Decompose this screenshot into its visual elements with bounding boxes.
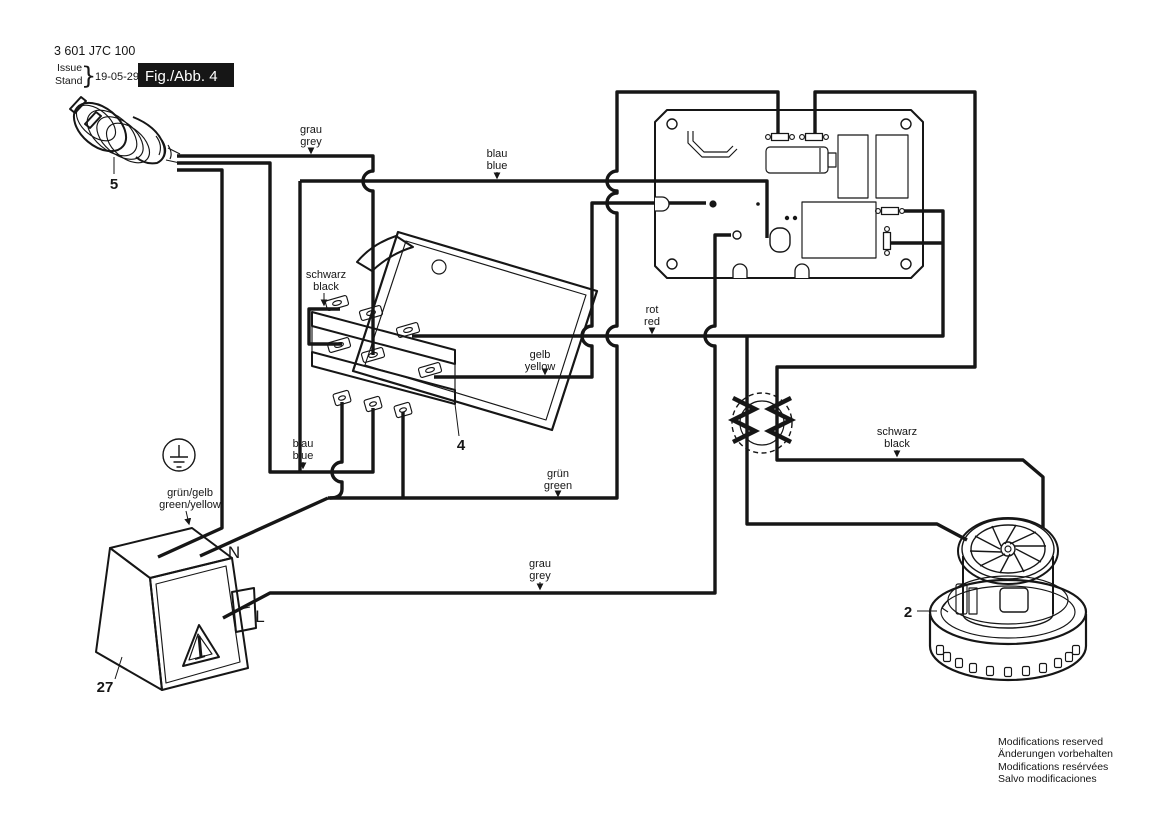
suppressor-winding-left: [733, 398, 755, 442]
wire-black: [777, 92, 1043, 528]
switch-screw-hole: [432, 260, 446, 274]
pcb-notch-left: [655, 197, 669, 211]
wire-label-gruen-gelb: grün/gelb green/yellow: [159, 487, 221, 524]
footer-line: Modifications reserved: [998, 736, 1103, 748]
footer-line: Salvo modificaciones: [998, 773, 1097, 785]
ground-symbol: [163, 439, 195, 471]
svg-text:red: red: [644, 316, 660, 328]
wire-label-gruen: grün green: [544, 468, 572, 496]
wire-label-grau-bottom: grau grey: [529, 558, 551, 589]
pcb-mount-hole: [901, 259, 911, 269]
svg-text:grey: grey: [529, 570, 551, 582]
figure-label: Fig./Abb. 4: [145, 68, 218, 85]
svg-text:grau: grau: [529, 558, 551, 570]
pcb-solder-dot: [709, 200, 716, 207]
rocker-switch: [312, 232, 597, 436]
pcb-mount-hole: [901, 119, 911, 129]
pcb-notch: [733, 264, 747, 278]
svg-text:black: black: [313, 281, 339, 293]
svg-text:black: black: [884, 438, 910, 450]
issue-label: Issue: [57, 62, 82, 74]
pcb-trace: [693, 131, 733, 152]
stand-label: Stand: [55, 75, 83, 87]
switch-leader: [455, 404, 459, 436]
svg-text:schwarz: schwarz: [877, 426, 917, 438]
svg-text:green/yellow: green/yellow: [159, 499, 221, 511]
socket-warning-glyph: [199, 636, 201, 657]
wire-label-gelb: gelb yellow: [525, 349, 556, 374]
footer-note: Modifications reserved Änderungen vorbeh…: [998, 736, 1113, 785]
switch-rocker: [357, 236, 413, 271]
wire-label-blau-top: blau blue: [487, 148, 508, 178]
socket-left-face: [96, 548, 162, 690]
pcb-component-block: [876, 135, 908, 198]
callout-socket: 27: [97, 679, 114, 696]
svg-text:blau: blau: [293, 438, 314, 450]
wire-label-schwarz-switch: schwarz black: [306, 269, 346, 305]
wire-label-grau-top: grau grey: [300, 124, 322, 153]
pcb: [655, 110, 923, 278]
switch-terminal-rail-upper: [312, 312, 455, 364]
title-block: 3 601 J7C 100 Issue Stand } 19-05-29 Fig…: [54, 44, 234, 90]
neutral-label: N: [228, 543, 240, 562]
svg-text:blau: blau: [487, 148, 508, 160]
plug-boot-rib: [168, 145, 171, 159]
svg-text:rot: rot: [646, 304, 659, 316]
earth-icon: [170, 445, 188, 467]
svg-text:grün: grün: [547, 468, 569, 480]
motor: [917, 518, 1086, 680]
label-arrow: [186, 511, 189, 524]
schematic-page: 3 601 J7C 100 Issue Stand } 19-05-29 Fig…: [0, 0, 1169, 826]
wire-red: [412, 211, 943, 336]
callout-switch: 4: [457, 437, 466, 454]
brace-glyph: }: [81, 62, 96, 90]
pcb-component-block: [838, 135, 868, 198]
pcb-jumper: [800, 134, 829, 141]
pcb-mount-hole: [667, 119, 677, 129]
socket-leader: [115, 657, 122, 679]
pcb-solder-dot: [756, 202, 760, 206]
footer-line: Modifications resérvées: [998, 761, 1108, 773]
footer-line: Änderungen vorbehalten: [998, 748, 1113, 760]
callout-motor: 2: [904, 604, 912, 621]
svg-text:grau: grau: [300, 124, 322, 136]
motor-lead-squiggle: [942, 600, 948, 612]
suppressor-ring: [732, 393, 792, 453]
svg-text:blue: blue: [293, 450, 314, 462]
pcb-capacitor: [766, 147, 828, 173]
svg-text:blue: blue: [487, 160, 508, 172]
wire-label-blau-bottom: blau blue: [293, 438, 314, 468]
pcb-jumper: [876, 208, 905, 215]
mains-plug: [65, 93, 180, 174]
motor-label-tab: [1000, 588, 1028, 612]
pcb-notch: [795, 264, 809, 278]
motor-fan-rim: [962, 519, 1054, 579]
part-number: 3 601 J7C 100: [54, 44, 135, 58]
wiring-diagram-canvas: 3 601 J7C 100 Issue Stand } 19-05-29 Fig…: [0, 0, 1169, 826]
pcb-solder-dot: [793, 216, 797, 220]
pcb-jumper: [766, 134, 795, 141]
socket-front-inner: [156, 566, 240, 683]
wire-grey-top: [177, 156, 373, 355]
pcb-mount-hole: [667, 259, 677, 269]
svg-text:gelb: gelb: [530, 349, 551, 361]
motor-terminal-block: [969, 588, 977, 614]
svg-text:grün/gelb: grün/gelb: [167, 487, 213, 499]
wire-green: [328, 92, 778, 498]
plug-rib: [79, 101, 145, 164]
svg-text:schwarz: schwarz: [306, 269, 346, 281]
issue-date: 19-05-29: [95, 71, 139, 83]
svg-text:green: green: [544, 480, 572, 492]
socket-top-face: [110, 528, 232, 578]
svg-text:yellow: yellow: [525, 361, 556, 373]
pcb-capacitor-nub: [828, 153, 836, 167]
callout-plug: 5: [110, 176, 118, 193]
pcb-relay: [802, 202, 876, 258]
suppressor-winding-right: [769, 398, 791, 442]
wire-label-rot: rot red: [644, 304, 660, 333]
pcb-solder-dot: [785, 216, 789, 220]
motor-fan-hub: [1001, 542, 1015, 556]
switch-back-plate-inner: [365, 241, 586, 420]
wires: [158, 92, 1043, 618]
wire-label-schwarz-motor: schwarz black: [877, 426, 917, 456]
line-label: L: [255, 607, 264, 626]
pcb-pad-hole: [733, 231, 741, 239]
svg-text:grey: grey: [300, 136, 322, 148]
pcb-pad: [770, 228, 790, 252]
motor-fan-hub-center: [1005, 546, 1011, 552]
wire-switch-to-neutral: [330, 402, 342, 498]
pcb-jumper-vertical: [884, 227, 891, 256]
